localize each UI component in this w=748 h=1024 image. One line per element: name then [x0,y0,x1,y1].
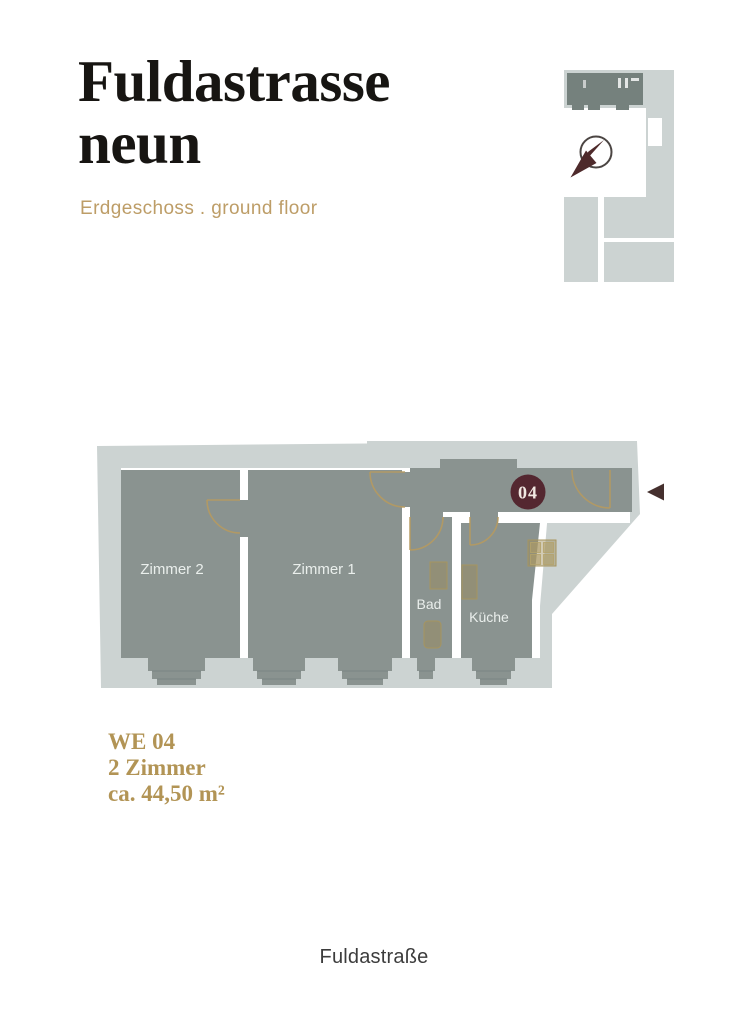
room-label-zimmer1: Zimmer 1 [292,561,355,578]
room-label-bad: Bad [417,596,442,612]
page-title: Fuldastrasse neun [78,50,390,174]
site-plan-thumbnail [555,60,685,290]
kitchen-sink-fixture [462,565,477,599]
unit-info-rooms: 2 Zimmer [108,755,225,781]
room-label-kueche: Küche [469,609,509,625]
room-label-zimmer2: Zimmer 2 [140,561,203,578]
window-tab [417,658,435,679]
floor-subtitle: Erdgeschoss . ground floor [80,198,317,220]
unit-badge-number: 04 [518,483,538,503]
unit-badge: 04 [511,475,546,510]
street-label: Fuldastraße [0,946,748,969]
page-title-line2: neun [78,112,390,174]
unit-info: WE 04 2 Zimmer ca. 44,50 m² [108,729,225,807]
floor-plan: Zimmer 2 Zimmer 1 Bad Küche 04 [85,425,675,715]
compass-icon [571,137,612,178]
stove-fixture [528,540,556,566]
page-title-line1: Fuldastrasse [78,50,390,112]
toilet-fixture [424,621,441,648]
unit-info-area: ca. 44,50 m² [108,781,225,807]
brochure-page: Fuldastrasse neun Erdgeschoss . ground f… [0,0,748,1024]
site-plan-unit-highlight [567,73,643,110]
bath-sink-fixture [430,562,447,589]
entrance-arrow-icon [647,484,664,501]
unit-info-number: WE 04 [108,729,225,755]
